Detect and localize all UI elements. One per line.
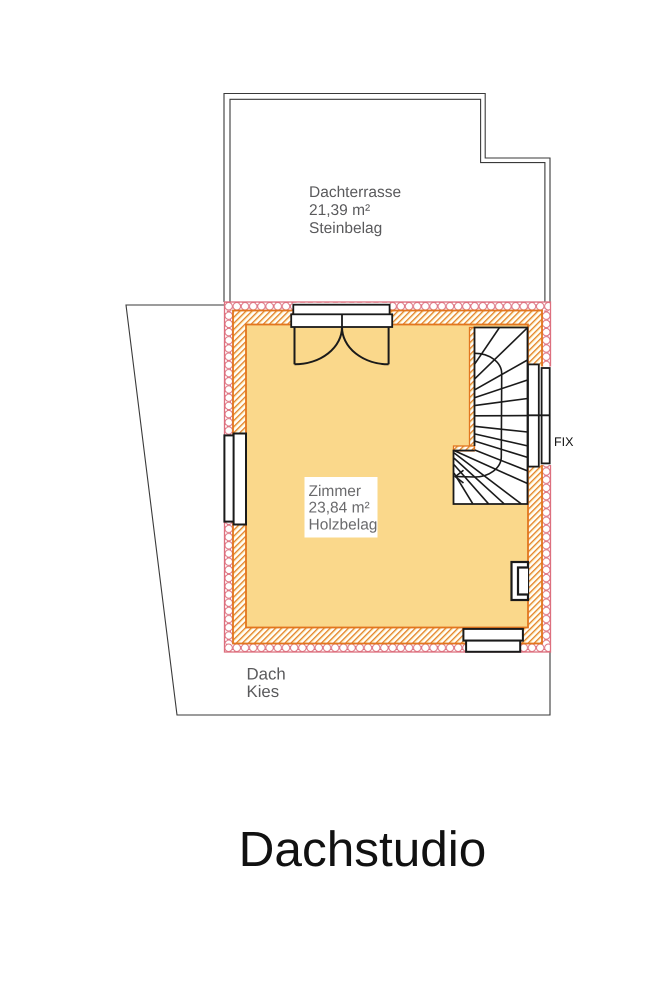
svg-text:Steinbelag: Steinbelag [309, 220, 382, 237]
svg-text:FIX: FIX [554, 435, 574, 449]
svg-text:Dach: Dach [247, 665, 286, 684]
svg-text:23,84 m²: 23,84 m² [309, 500, 370, 517]
svg-text:Kies: Kies [247, 682, 280, 701]
svg-text:21,39 m²: 21,39 m² [309, 202, 370, 219]
svg-text:Dachterrasse: Dachterrasse [309, 184, 401, 201]
svg-text:Holzbelag: Holzbelag [309, 517, 378, 534]
svg-text:Zimmer: Zimmer [309, 483, 362, 500]
svg-text:Dachstudio: Dachstudio [239, 822, 487, 877]
